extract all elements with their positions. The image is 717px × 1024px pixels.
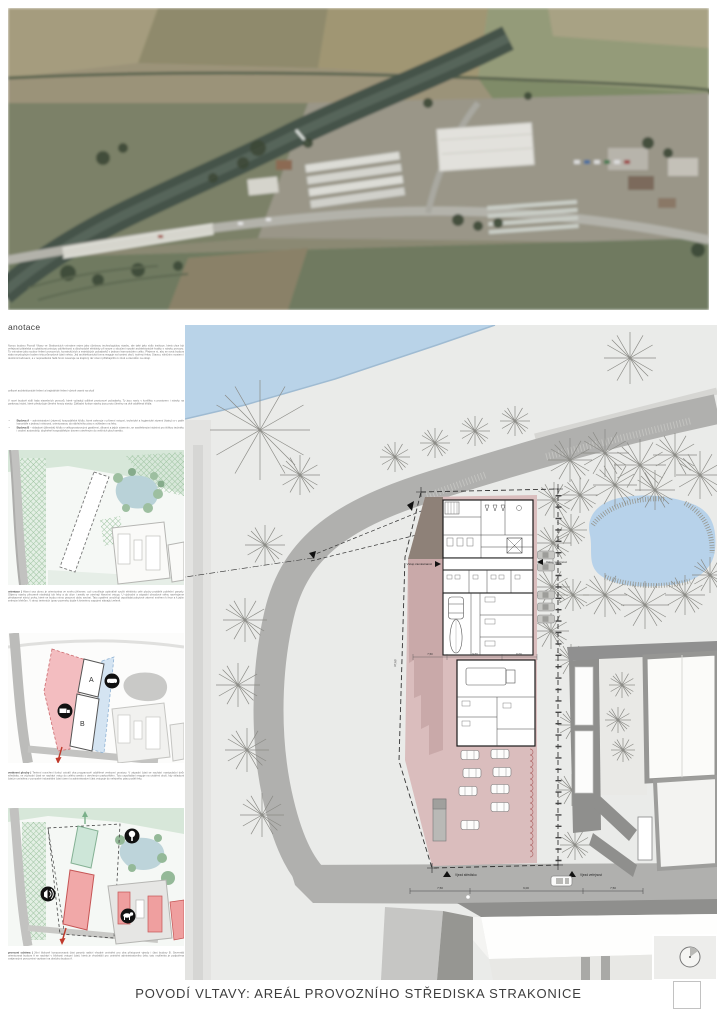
svg-text:7,50: 7,50 — [610, 886, 616, 890]
svg-text:6,00: 6,00 — [516, 652, 522, 656]
car-on-road — [551, 876, 572, 886]
left-column: anotace Novou budovu Povodí Vltavy ve St… — [8, 322, 184, 982]
diagram-outdoor-areas: A B — [8, 633, 184, 763]
bullet-budova-a: Budova A – administrativní (zázemí) hosp… — [8, 419, 184, 425]
pond — [589, 495, 715, 586]
stamp-box — [673, 981, 701, 1009]
aerial-photo — [8, 8, 709, 310]
svg-text:7,50: 7,50 — [427, 652, 433, 656]
caption-operation-scheme: provozní schéma | Jižní blokově komponov… — [8, 951, 184, 981]
annotation-bullets: Budova A – administrativní (zázemí) hosp… — [8, 419, 184, 448]
building-a-label: A — [89, 677, 94, 684]
annotation-paragraph-1: Novou budovu Povodí Vltavy ve Strakonicí… — [8, 344, 184, 388]
building-a-plan — [443, 500, 533, 558]
annotation-heading: anotace — [8, 322, 40, 332]
embankment — [193, 445, 203, 980]
svg-text:7,50: 7,50 — [437, 886, 443, 890]
building-b-plan — [457, 660, 535, 746]
clock-circle — [680, 947, 700, 967]
caption-orientation: orientace | Hlavní osa domu je orientová… — [8, 590, 184, 632]
svg-text:9,60: 9,60 — [472, 652, 478, 656]
noise-icon — [41, 887, 56, 902]
annotation-subheading: celkové architektonické řešení a krajiná… — [8, 389, 184, 397]
diagram-operation-scheme — [8, 808, 184, 946]
building-b-label: B — [80, 721, 85, 728]
caption-outdoor-areas: venkovní plochy | Terénní rozvržení funk… — [8, 771, 184, 807]
annotation-paragraph-2: V nové budově sídlí řada stavebních prov… — [8, 399, 184, 418]
dog-icon — [121, 909, 136, 924]
bullet-budova-b: Budova B – skladové (dílenské) křídlo s … — [8, 426, 184, 432]
truck-icon — [58, 704, 73, 719]
svg-text:Vstup zaměstnanci: Vstup zaměstnanci — [407, 562, 433, 566]
south-building — [381, 899, 717, 980]
white-hall — [437, 123, 535, 172]
garage-wing — [443, 593, 533, 655]
svg-text:9,00: 9,00 — [523, 886, 529, 890]
aerial-photo-graphic — [8, 8, 709, 310]
svg-text:Vstup veřejnost: Vstup veřejnost — [546, 560, 567, 564]
tree-icon — [125, 829, 140, 844]
site-plan: 7,50 9,60 6,00 — [185, 325, 717, 980]
truck — [433, 799, 446, 841]
bottom-road — [289, 863, 717, 905]
page-title: POVODÍ VLTAVY: AREÁL PROVOZNÍHO STŘEDISK… — [0, 986, 717, 1001]
car-icon — [105, 674, 120, 689]
diagram-orientation — [8, 450, 184, 585]
svg-text:Vjezd veřejnost: Vjezd veřejnost — [580, 873, 602, 877]
locker-rooms — [443, 570, 533, 593]
side-dimension: 37,60 — [393, 659, 397, 667]
svg-text:Vjezd středisko: Vjezd středisko — [455, 873, 477, 877]
